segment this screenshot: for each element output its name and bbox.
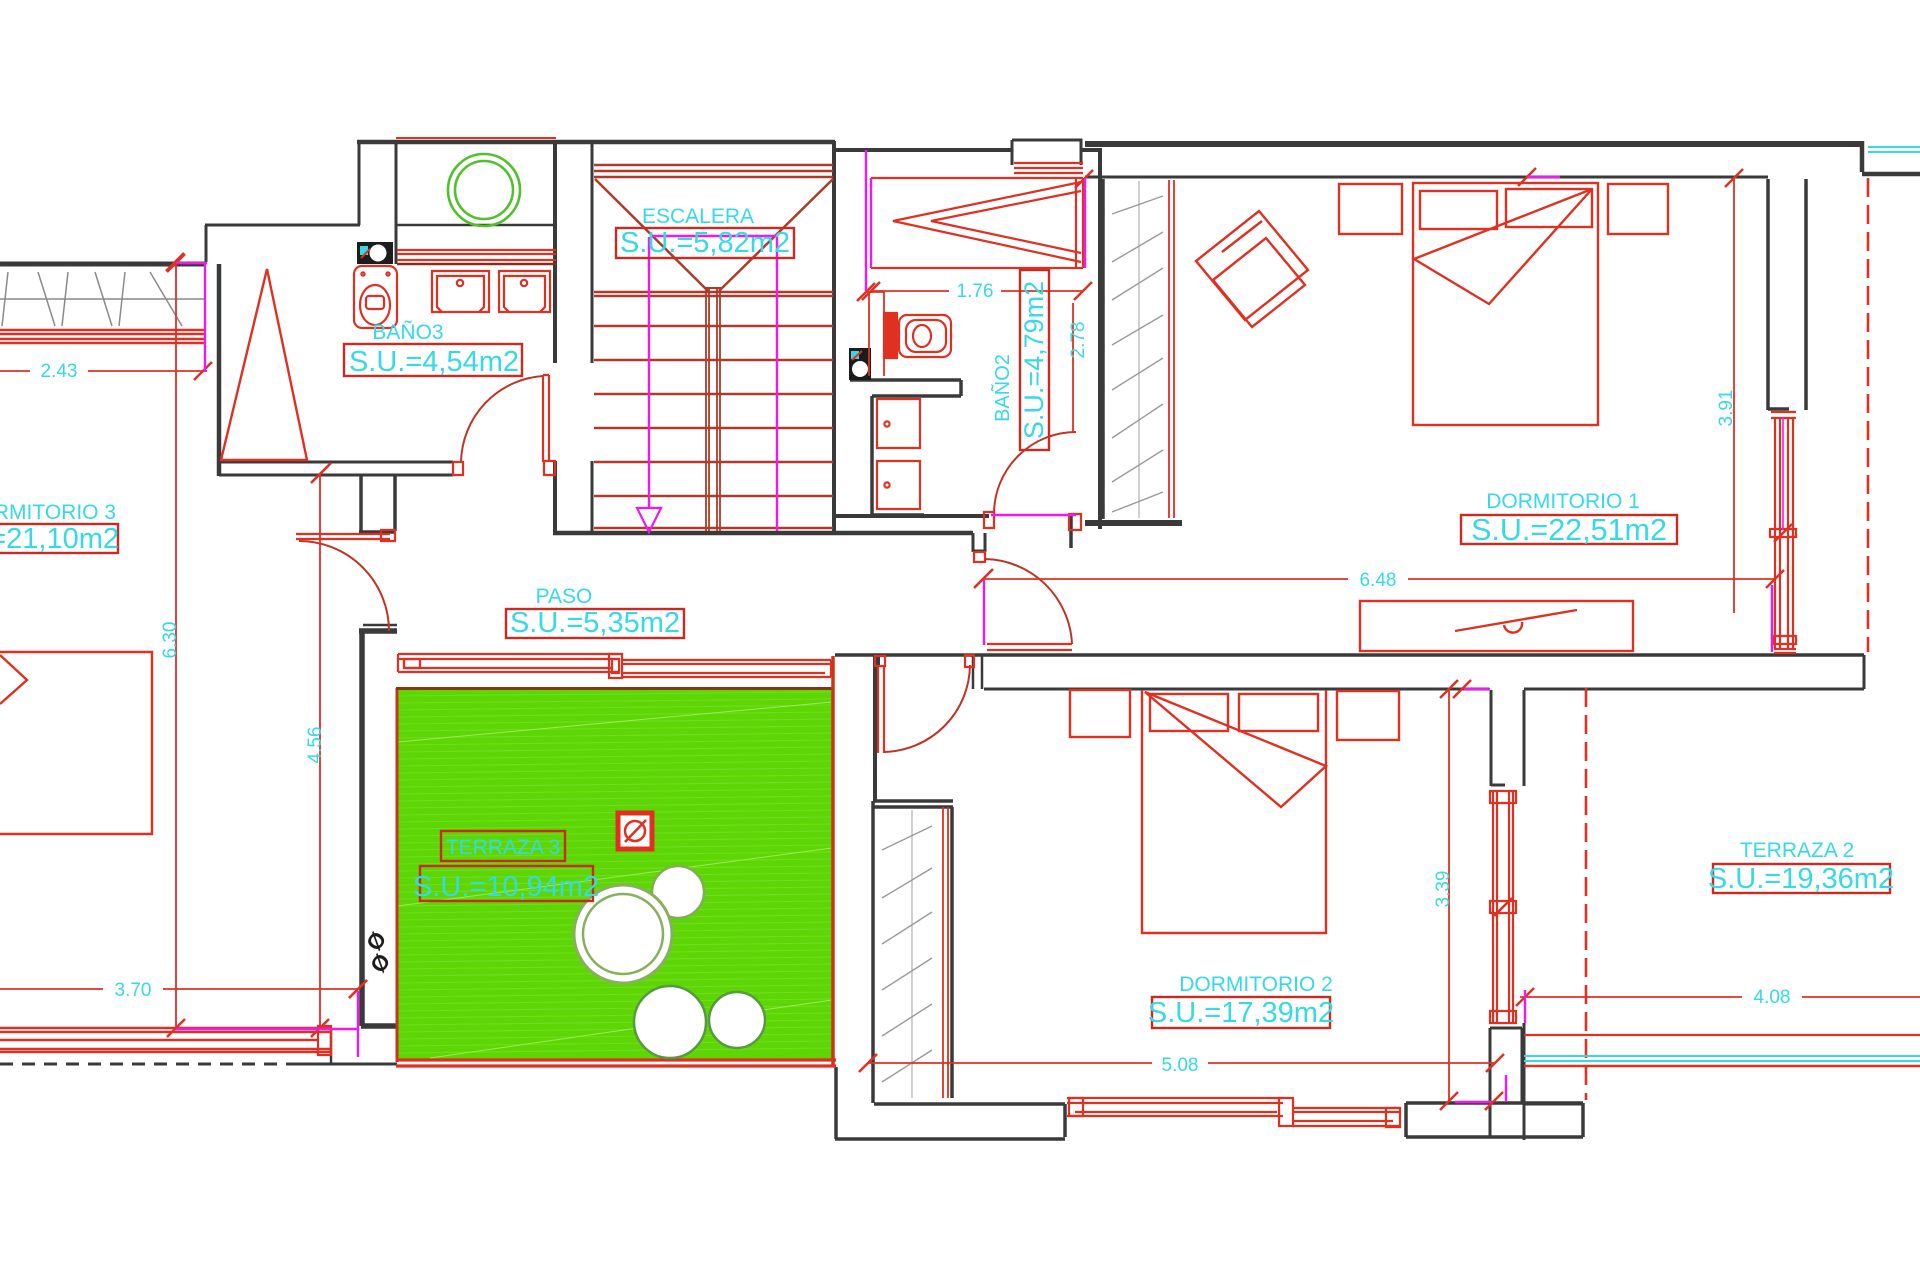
- svg-text:DORMITORIO 2: DORMITORIO 2: [1179, 973, 1333, 996]
- svg-text:ESCALERA: ESCALERA: [642, 205, 754, 228]
- svg-text:DORMITORIO 1: DORMITORIO 1: [1486, 490, 1640, 513]
- svg-text:S.U.=4,54m2: S.U.=4,54m2: [349, 346, 519, 378]
- svg-text:S.U.=19,36m2: S.U.=19,36m2: [1708, 863, 1894, 895]
- svg-text:1.76: 1.76: [957, 281, 994, 302]
- svg-text:6.30: 6.30: [160, 622, 181, 659]
- svg-text:2.78: 2.78: [1068, 322, 1089, 359]
- svg-text:PASO: PASO: [536, 585, 593, 608]
- svg-text:2.43: 2.43: [41, 361, 78, 382]
- svg-text:BAÑO2: BAÑO2: [990, 354, 1014, 422]
- svg-text:S.U.=17,39m2: S.U.=17,39m2: [1148, 997, 1334, 1029]
- svg-text:3.70: 3.70: [115, 980, 152, 1001]
- svg-text:6.48: 6.48: [1360, 570, 1397, 591]
- svg-text:3.39: 3.39: [1433, 871, 1454, 908]
- svg-text:S.U.=4,79m2: S.U.=4,79m2: [1019, 281, 1049, 439]
- svg-text:TERRAZA 3: TERRAZA 3: [446, 836, 560, 859]
- svg-text:BAÑO3: BAÑO3: [372, 320, 443, 344]
- svg-text:S.U.=21,10m2: S.U.=21,10m2: [0, 523, 119, 555]
- svg-text:3.91: 3.91: [1716, 390, 1737, 427]
- svg-text:4.08: 4.08: [1754, 987, 1791, 1008]
- svg-text:DORMITORIO 3: DORMITORIO 3: [0, 501, 116, 524]
- svg-text:5.08: 5.08: [1162, 1055, 1199, 1076]
- svg-text:Ø: Ø: [365, 949, 395, 977]
- svg-text:S.U.=5,82m2: S.U.=5,82m2: [620, 227, 790, 259]
- svg-text:TERRAZA 2: TERRAZA 2: [1740, 839, 1854, 862]
- svg-text:S.U.=5,35m2: S.U.=5,35m2: [510, 607, 680, 639]
- svg-text:S.U.=10,94m2: S.U.=10,94m2: [413, 871, 599, 903]
- svg-text:S.U.=22,51m2: S.U.=22,51m2: [1471, 513, 1667, 547]
- svg-text:4.56: 4.56: [305, 727, 326, 764]
